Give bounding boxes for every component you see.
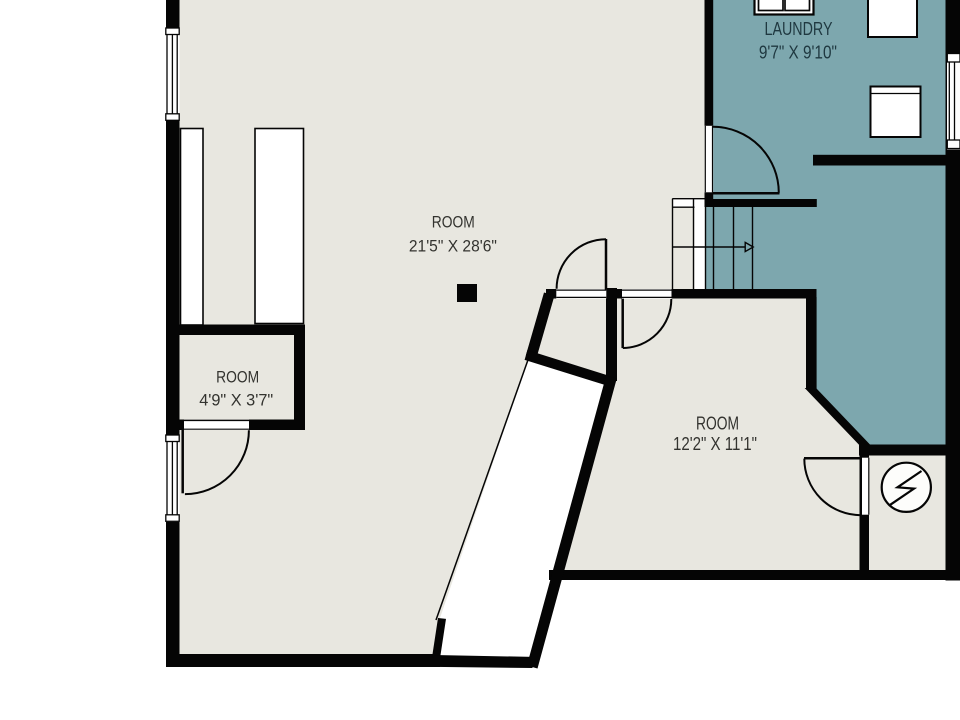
svg-text:9'7" X 9'10": 9'7" X 9'10": [759, 43, 837, 63]
svg-text:4'9" X 3'7": 4'9" X 3'7": [199, 391, 273, 409]
svg-text:ROOM: ROOM: [696, 414, 739, 434]
svg-text:21'5" X 28'6": 21'5" X 28'6": [409, 238, 497, 256]
svg-text:ROOM: ROOM: [216, 369, 259, 387]
svg-text:LAUNDRY: LAUNDRY: [765, 19, 833, 39]
svg-text:ROOM: ROOM: [432, 213, 475, 231]
svg-text:12'2" X 11'1": 12'2" X 11'1": [673, 434, 757, 454]
